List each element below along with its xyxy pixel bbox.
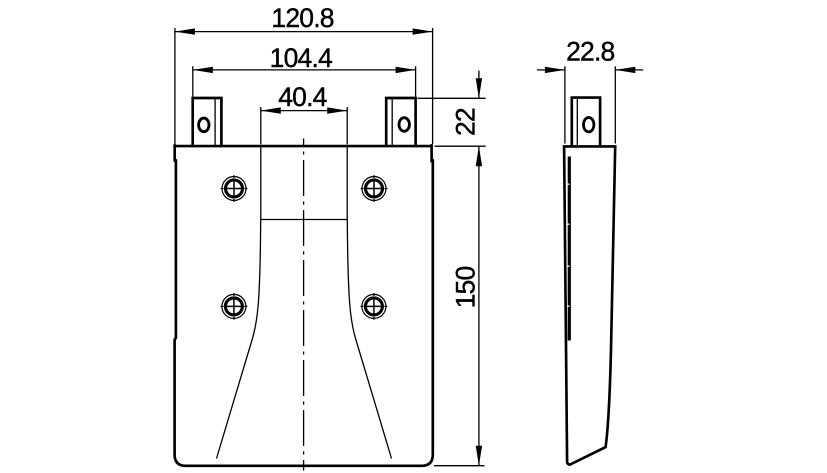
- svg-text:150: 150: [450, 267, 480, 309]
- svg-text:22: 22: [450, 108, 480, 136]
- svg-text:104.4: 104.4: [270, 43, 332, 73]
- svg-text:120.8: 120.8: [271, 3, 333, 33]
- svg-text:40.4: 40.4: [278, 82, 326, 112]
- svg-text:22.8: 22.8: [566, 36, 614, 66]
